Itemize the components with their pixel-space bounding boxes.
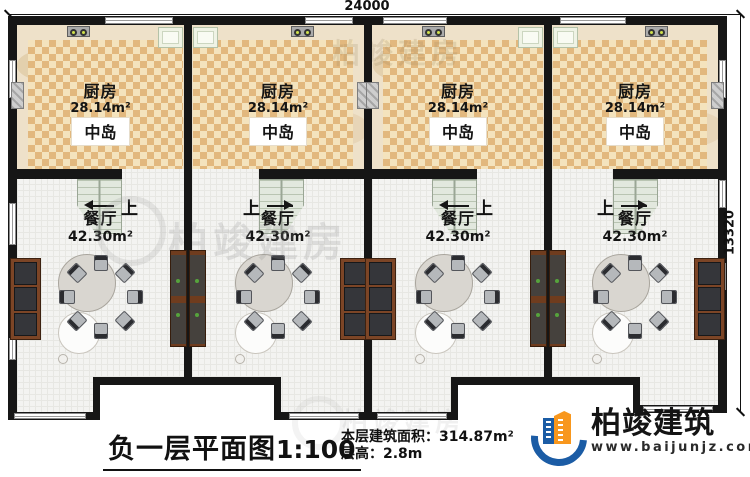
chair [484,290,500,304]
stove-icon [67,26,90,37]
chair [94,323,108,339]
interior-wall [363,169,477,179]
chair [416,290,432,304]
chair [451,323,465,339]
stove-icon [645,26,668,37]
table-center [415,354,425,364]
chair [471,310,492,331]
kitchen-label: 厨房 28.14m² 中岛 [372,83,544,145]
chair [648,310,669,331]
brand-logo-icon [529,401,585,461]
island-label: 中岛 [607,118,663,145]
dining-name: 餐厅 [552,209,718,229]
island-label: 中岛 [72,118,128,145]
chair [94,255,108,271]
water-heater-icon [366,82,379,109]
tall-cabinet [189,250,206,347]
sink-icon [158,27,183,48]
chair [304,290,320,304]
chair [451,255,465,271]
table-center [235,354,245,364]
kitchen-label: 厨房 28.14m² 中岛 [192,83,364,145]
sideboard-cabinet [694,258,725,340]
sink-icon [518,27,543,48]
tall-cabinet [530,250,547,347]
window [377,413,447,419]
chair [291,310,312,331]
chair [661,290,677,304]
window [383,17,447,24]
window [9,203,16,245]
window [305,17,353,24]
dining-table [415,254,501,340]
brand-logo: 柏竣建筑 www.baijunjz.com [529,401,750,461]
info-area-row: 本层建筑面积：314.87m² [341,429,514,446]
dining-name: 餐厅 [372,209,544,229]
chair [648,262,669,283]
interior-wall [613,169,727,179]
interior-wall [8,169,122,179]
dimension-line-top [8,14,741,15]
dining-label: 餐厅 42.30m² [552,209,718,245]
chair [114,310,135,331]
brand-name: 柏竣建筑 [591,408,750,440]
chair [271,323,285,339]
chair [236,290,252,304]
chair [127,290,143,304]
chair [471,262,492,283]
stove-icon [291,26,314,37]
interior-wall [259,169,373,179]
dining-table [58,254,144,340]
dining-area: 42.30m² [552,229,718,245]
sink-icon [553,27,578,48]
water-heater-icon [11,82,24,109]
tall-cabinet [549,250,566,347]
stairs-direction-arrow [621,205,647,207]
table-center [58,354,68,364]
kitchen-label: 厨房 28.14m² 中岛 [552,83,718,145]
table-center [592,354,602,364]
stairs-direction-arrow [267,205,293,207]
unit-u4: 厨房 28.14m² 中岛 上 餐厅 42.30m² [552,25,718,413]
tall-cabinet [170,250,187,347]
kitchen-name: 厨房 [192,83,364,101]
island-label: 中岛 [250,118,306,145]
chair [628,255,642,271]
watermark-ring [96,196,166,266]
dining-label: 餐厅 42.30m² [372,209,544,245]
dining-area: 42.30m² [372,229,544,245]
window [289,413,359,419]
drawing-info: 本层建筑面积：314.87m² 层高：2.8m [341,429,514,463]
dimension-right: 13320 [723,203,738,263]
title-text: 负一层平面图 [108,434,276,465]
window [14,413,86,419]
window [105,17,173,24]
chair [593,290,609,304]
kitchen-name: 厨房 [17,83,184,101]
kitchen-area: 28.14m² [552,101,718,116]
logo-building-orange-icon [554,411,571,444]
sideboard-cabinet [10,258,41,340]
watermark-text: 柏竣建房 [332,32,464,72]
logo-building-blue-icon [543,418,555,444]
sideboard-cabinet [365,258,396,340]
chair [59,290,75,304]
water-heater-icon [711,82,724,109]
kitchen-label: 厨房 28.14m² 中岛 [17,83,184,145]
kitchen-name: 厨房 [372,83,544,101]
dimension-line-right [740,14,741,413]
kitchen-name: 厨房 [552,83,718,101]
kitchen-area: 28.14m² [17,101,184,116]
dining-table [592,254,678,340]
stairs-direction-arrow [443,205,469,207]
dimension-top: 24000 [337,0,397,14]
floor-plan: 厨房 28.14m² 中岛 上 餐厅 42.30m² 厨房 28.14m² 中岛… [0,0,750,473]
unit-u3: 厨房 28.14m² 中岛 上 餐厅 42.30m² [372,25,544,413]
sink-icon [193,27,218,48]
brand-text: 柏竣建筑 www.baijunjz.com [591,408,750,455]
info-height-row: 层高：2.8m [341,446,514,463]
brand-site: www.baijunjz.com [591,440,750,455]
window [9,338,16,360]
chair [628,323,642,339]
drawing-title: 负一层平面图1:100 [103,427,361,471]
window [560,17,626,24]
kitchen-area: 28.14m² [372,101,544,116]
kitchen-area: 28.14m² [192,101,364,116]
island-label: 中岛 [430,118,486,145]
